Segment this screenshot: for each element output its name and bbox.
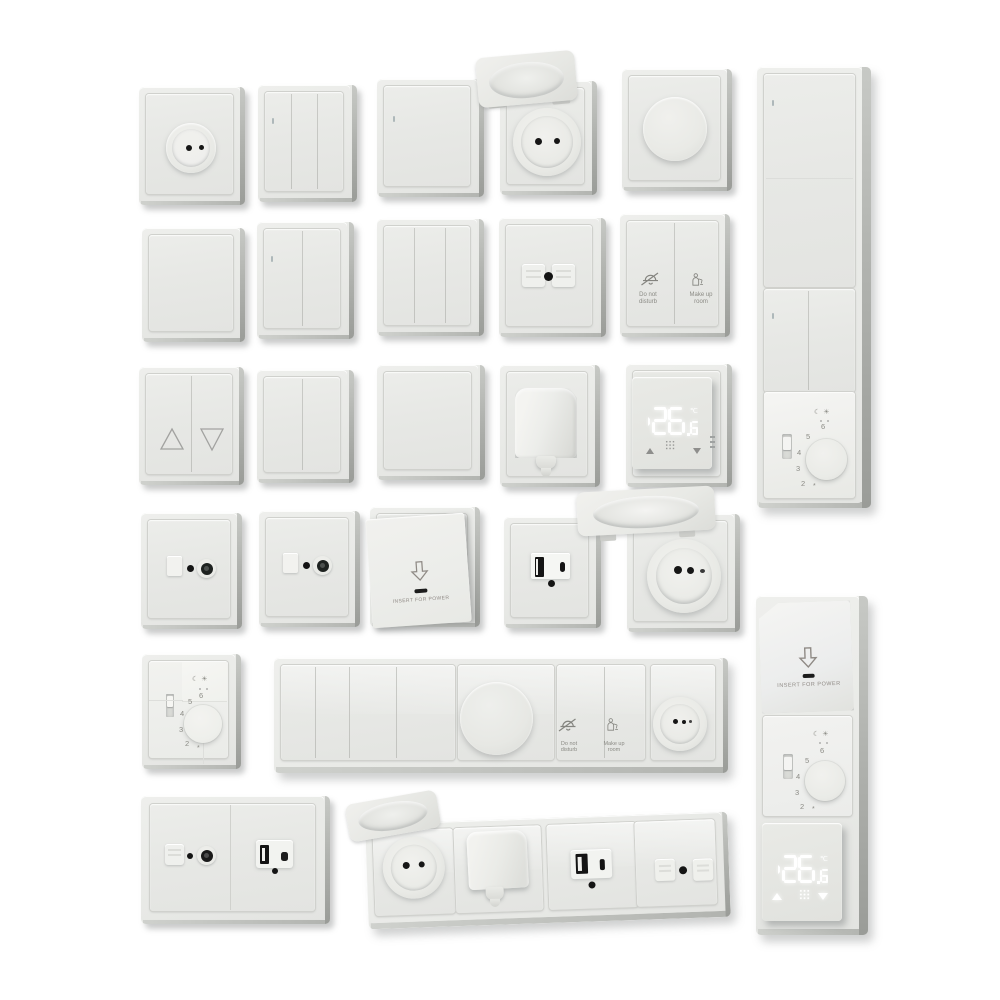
svg-text:℃: ℃ bbox=[820, 856, 828, 863]
svg-text:℃: ℃ bbox=[690, 408, 698, 415]
